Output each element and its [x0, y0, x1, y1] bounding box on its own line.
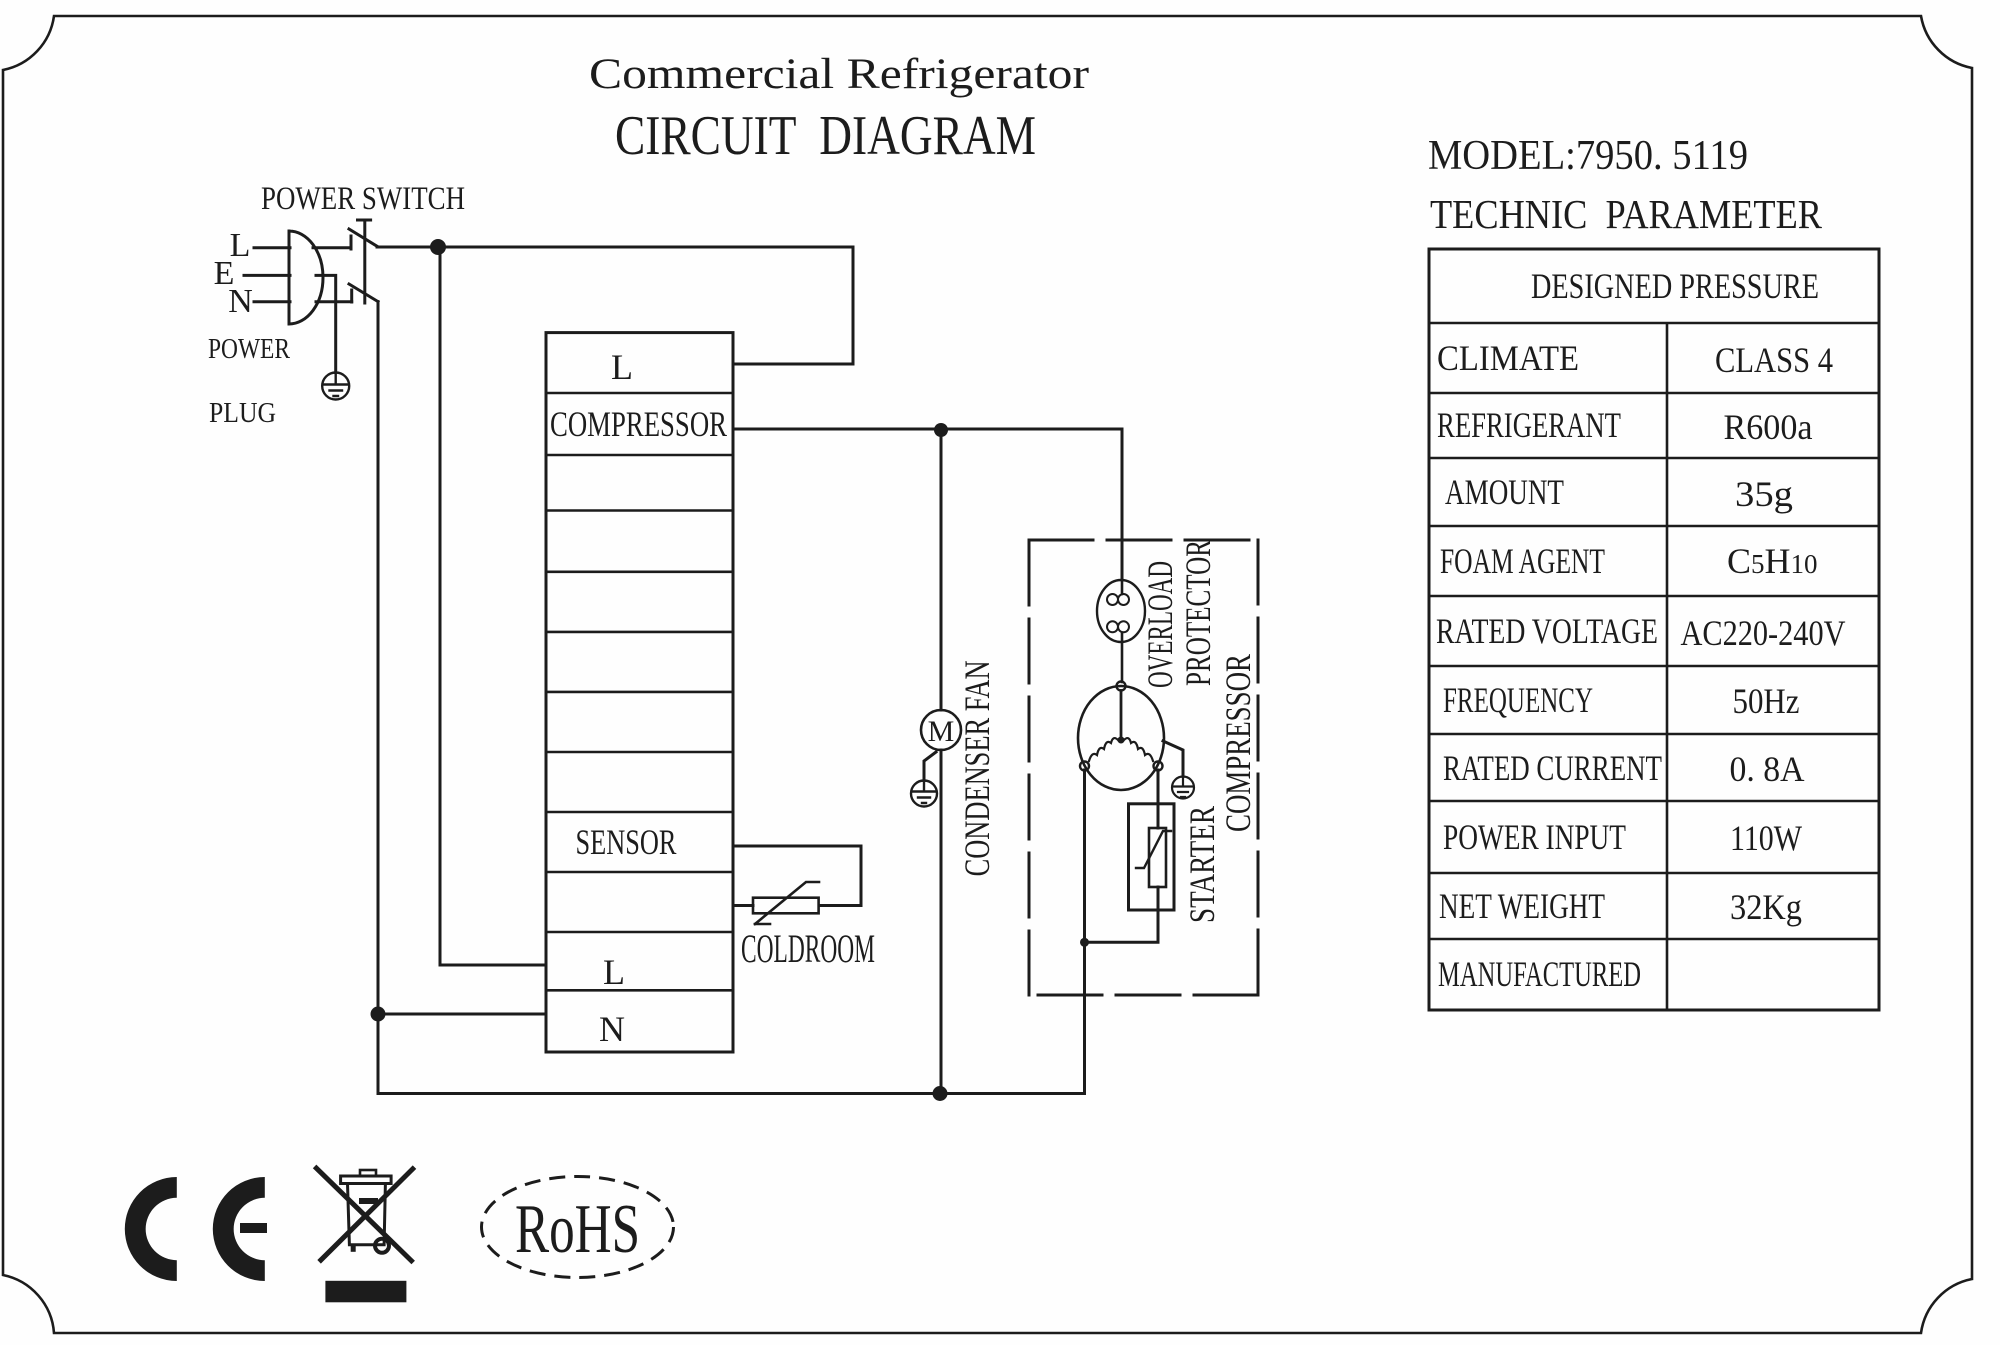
svg-text:L: L — [611, 347, 633, 387]
svg-text:RATED CURRENT: RATED CURRENT — [1443, 748, 1662, 788]
svg-text:COLDROOM: COLDROOM — [741, 926, 875, 971]
svg-text:SENSOR: SENSOR — [576, 822, 677, 862]
svg-text:POWER SWITCH: POWER SWITCH — [261, 181, 465, 217]
svg-text:PROTECTOR: PROTECTOR — [1178, 540, 1218, 686]
svg-text:50Hz: 50Hz — [1733, 681, 1800, 721]
svg-text:AMOUNT: AMOUNT — [1445, 472, 1564, 512]
svg-text:COMPRESSOR: COMPRESSOR — [1218, 654, 1258, 832]
svg-text:RATED VOLTAGE: RATED VOLTAGE — [1436, 611, 1658, 651]
svg-text:FREQUENCY: FREQUENCY — [1443, 680, 1593, 720]
svg-text:R600a: R600a — [1724, 407, 1813, 447]
svg-text:OVERLOAD: OVERLOAD — [1140, 561, 1180, 688]
svg-text:POWER INPUT: POWER INPUT — [1443, 817, 1626, 857]
svg-text:POWER: POWER — [208, 333, 291, 365]
svg-text:FOAM AGENT: FOAM AGENT — [1440, 541, 1605, 581]
svg-text:L: L — [603, 952, 625, 992]
svg-text:MODEL:7950. 5119: MODEL:7950. 5119 — [1428, 133, 1748, 179]
svg-text:REFRIGERANT: REFRIGERANT — [1437, 405, 1621, 445]
svg-text:0. 8A: 0. 8A — [1730, 749, 1805, 789]
svg-text:AC220-240V: AC220-240V — [1681, 613, 1846, 653]
svg-text:32Kg: 32Kg — [1730, 887, 1802, 927]
svg-text:TECHNIC PARAMETER: TECHNIC PARAMETER — [1430, 191, 1823, 237]
svg-text:NET WEIGHT: NET WEIGHT — [1439, 886, 1605, 926]
svg-text:COMPRESSOR: COMPRESSOR — [550, 404, 727, 444]
svg-text:DESIGNED PRESSURE: DESIGNED PRESSURE — [1531, 266, 1819, 306]
svg-text:MANUFACTURED: MANUFACTURED — [1438, 954, 1641, 994]
svg-text:M: M — [928, 715, 955, 748]
svg-text:Commercial Refrigerator: Commercial Refrigerator — [589, 51, 1089, 98]
svg-text:N: N — [599, 1009, 625, 1049]
svg-text:110W: 110W — [1730, 818, 1802, 858]
svg-text:CLIMATE: CLIMATE — [1437, 338, 1579, 378]
svg-text:CIRCUIT DIAGRAM: CIRCUIT DIAGRAM — [615, 105, 1036, 167]
svg-text:CONDENSER FAN: CONDENSER FAN — [957, 660, 997, 876]
svg-text:RoHS: RoHS — [515, 1191, 640, 1268]
svg-text:N: N — [228, 283, 253, 320]
svg-text:STARTER: STARTER — [1182, 806, 1222, 923]
svg-text:35g: 35g — [1735, 474, 1793, 514]
svg-text:CLASS 4: CLASS 4 — [1715, 340, 1833, 380]
svg-text:PLUG: PLUG — [209, 397, 276, 429]
